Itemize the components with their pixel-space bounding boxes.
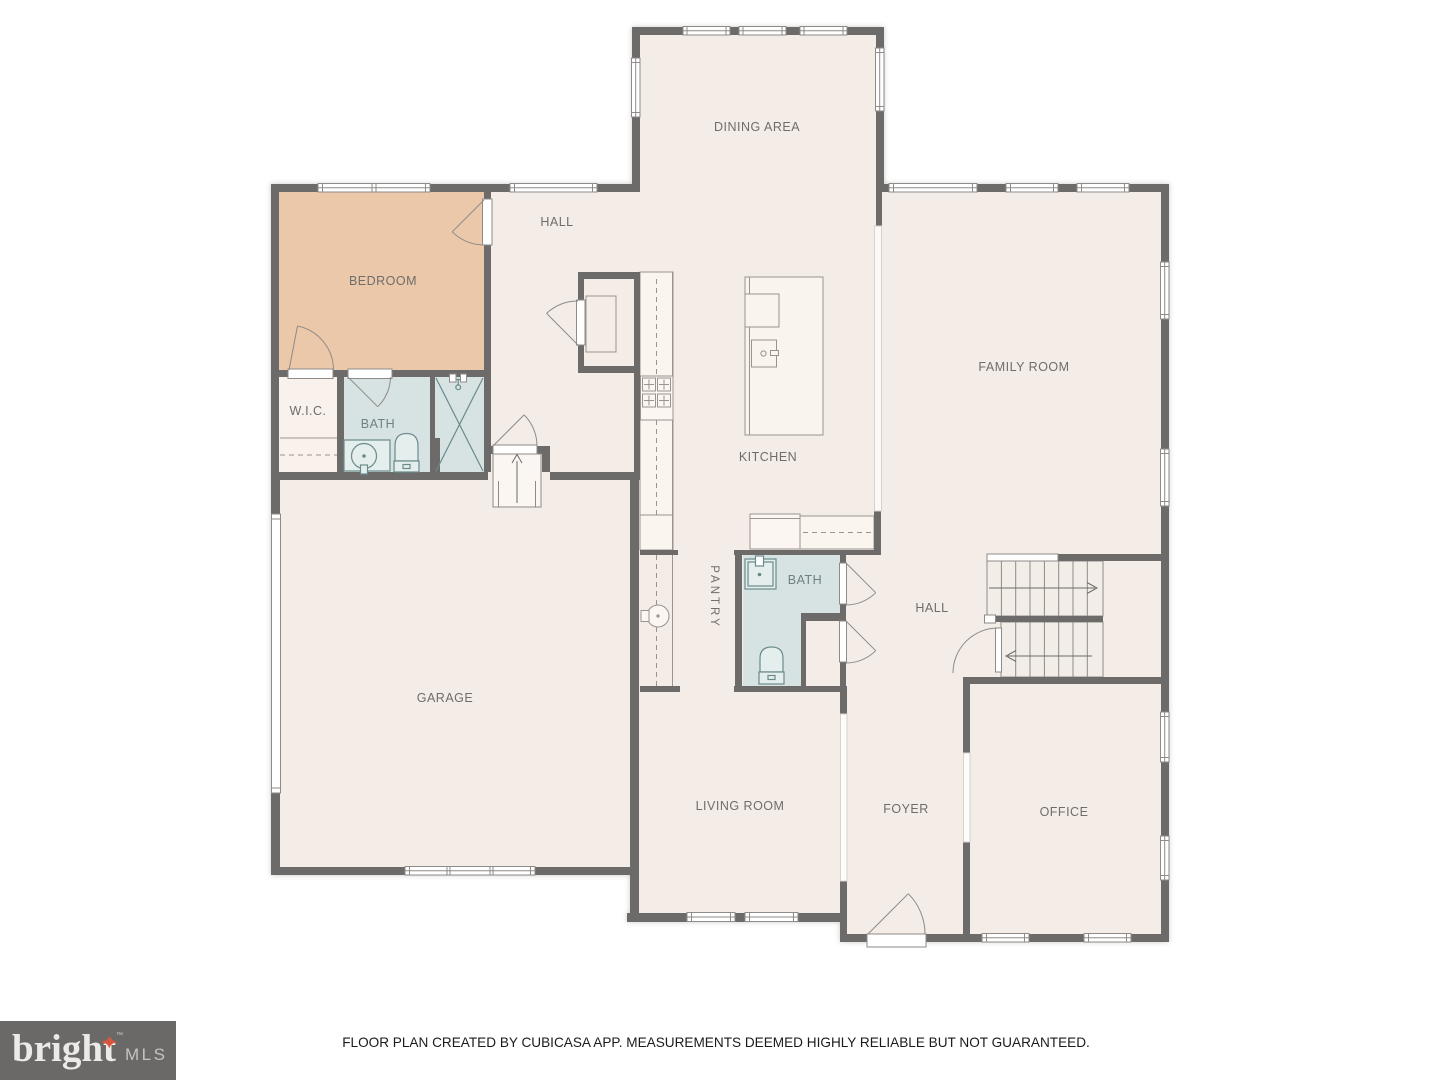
svg-text:LIVING ROOM: LIVING ROOM [696, 799, 785, 813]
svg-text:FAMILY ROOM: FAMILY ROOM [978, 360, 1069, 374]
svg-text:KITCHEN: KITCHEN [739, 450, 797, 464]
svg-text:BATH: BATH [361, 417, 395, 431]
svg-text:MLS: MLS [125, 1045, 167, 1064]
svg-text:W.I.C.: W.I.C. [289, 404, 326, 418]
svg-text:GARAGE: GARAGE [417, 691, 474, 705]
svg-text:FOYER: FOYER [883, 802, 929, 816]
svg-text:OFFICE: OFFICE [1040, 805, 1089, 819]
svg-text:BATH: BATH [788, 573, 822, 587]
svg-text:HALL: HALL [915, 601, 948, 615]
svg-text:bright: bright [12, 1027, 116, 1070]
svg-text:HALL: HALL [540, 215, 573, 229]
svg-text:DINING AREA: DINING AREA [714, 120, 800, 134]
svg-text:PANTRY: PANTRY [708, 565, 720, 629]
svg-text:™: ™ [116, 1032, 123, 1039]
svg-text:FLOOR PLAN CREATED BY CUBICASA: FLOOR PLAN CREATED BY CUBICASA APP. MEAS… [342, 1035, 1090, 1050]
svg-text:BEDROOM: BEDROOM [349, 274, 417, 288]
